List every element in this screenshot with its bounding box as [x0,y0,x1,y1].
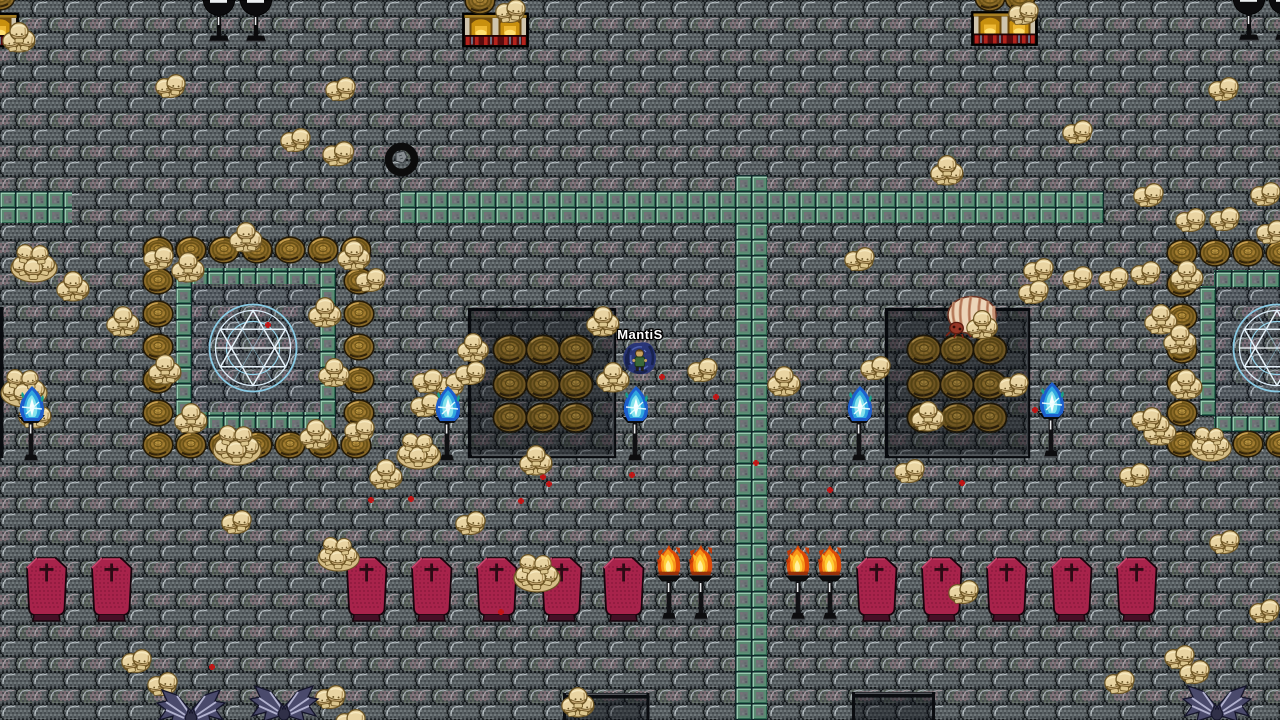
svg-text:MantiS: MantiS [617,327,663,342]
